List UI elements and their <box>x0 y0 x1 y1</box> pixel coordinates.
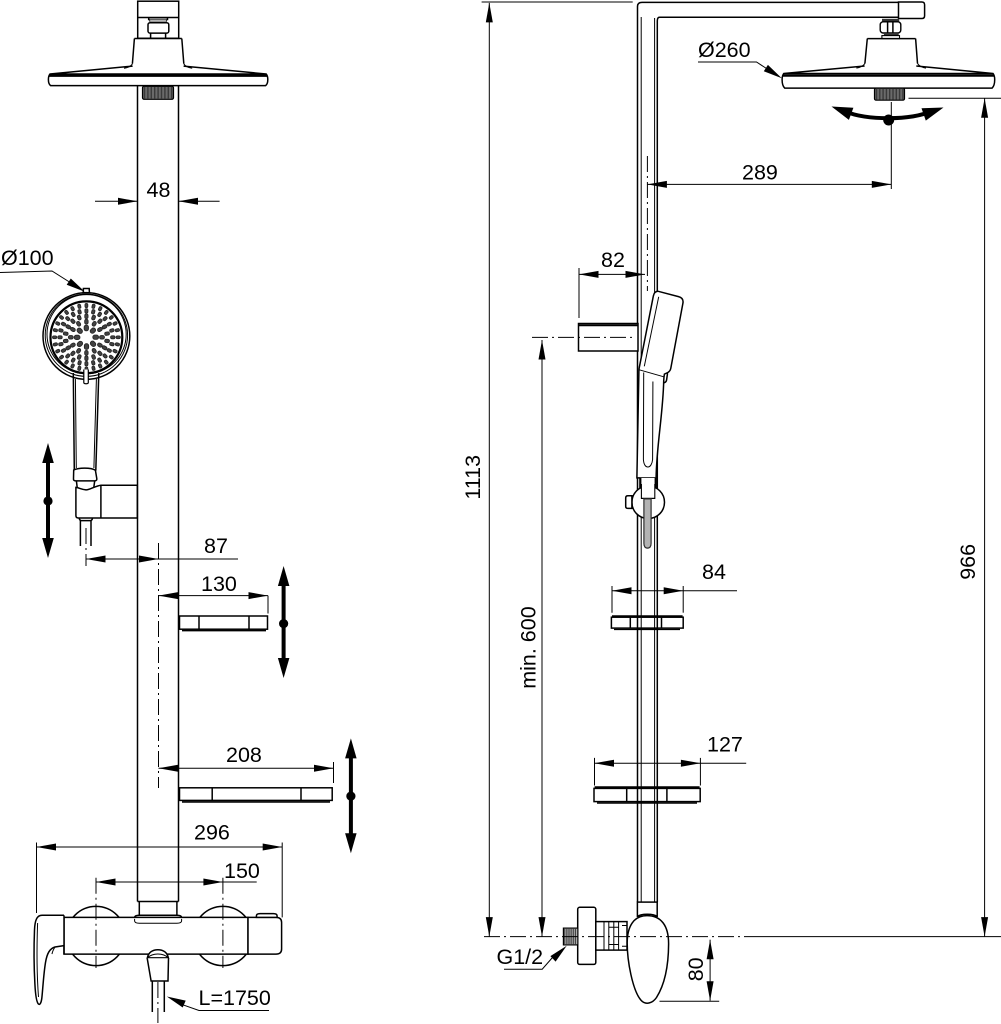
svg-text:84: 84 <box>702 560 726 584</box>
svg-text:1113: 1113 <box>461 455 485 500</box>
svg-text:Ø100: Ø100 <box>1 246 54 270</box>
svg-text:min. 600: min. 600 <box>517 606 541 689</box>
svg-text:82: 82 <box>601 248 625 272</box>
svg-text:Ø260: Ø260 <box>698 38 751 62</box>
svg-text:127: 127 <box>707 733 743 757</box>
svg-text:296: 296 <box>194 821 230 845</box>
svg-text:L=1750: L=1750 <box>199 986 271 1010</box>
svg-text:87: 87 <box>204 534 228 558</box>
svg-text:130: 130 <box>201 572 237 596</box>
svg-text:48: 48 <box>147 178 171 202</box>
svg-text:80: 80 <box>684 957 708 981</box>
svg-text:G1/2: G1/2 <box>497 945 544 969</box>
svg-text:966: 966 <box>956 544 980 580</box>
svg-text:289: 289 <box>742 161 778 185</box>
svg-text:150: 150 <box>224 859 260 883</box>
svg-text:208: 208 <box>226 743 262 767</box>
